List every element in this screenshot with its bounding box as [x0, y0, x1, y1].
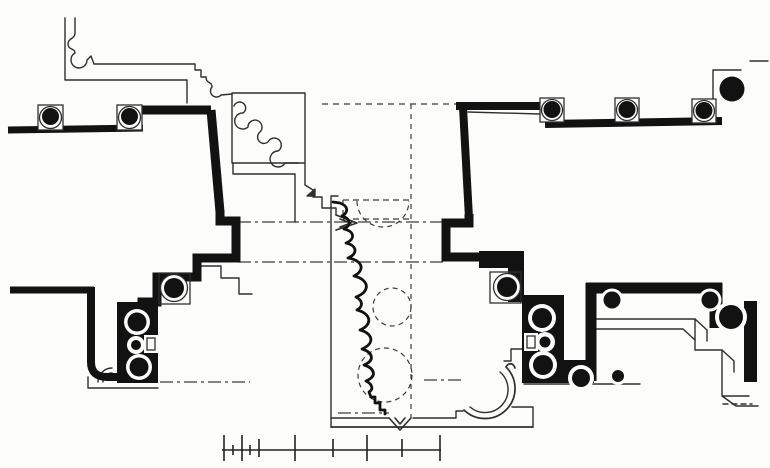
- step-outline-left-pier: [200, 266, 252, 294]
- ring-col-J-core: [572, 369, 590, 387]
- plan-figure: [0, 0, 770, 468]
- niche-arc-inner: [470, 372, 508, 413]
- triangle-hatch-mark: [307, 189, 315, 196]
- plinth-left-1-core: [42, 108, 59, 125]
- wall-right-diagonal: [463, 107, 469, 218]
- ring-col-A-core: [164, 278, 184, 298]
- dashed-pier-outline-box: [343, 200, 411, 219]
- ring-col-F-core: [497, 277, 517, 297]
- corner-column-big-core: [720, 77, 745, 102]
- pier-panel-molding-squiggle: [234, 102, 298, 167]
- wall-bottom-left-leg: [91, 287, 119, 377]
- chevron-notch: [389, 418, 411, 430]
- molding-inner-line: [65, 18, 187, 103]
- molding-outer-profile: [68, 18, 232, 97]
- plinth-columns: [38, 77, 745, 131]
- u-wall-inner-upper: [593, 319, 695, 340]
- ring-col-C-core: [131, 340, 141, 350]
- ring-col-leg-foot-core: [612, 370, 624, 382]
- plinth-left-2-core: [121, 108, 138, 125]
- ring-col-K-core: [719, 305, 743, 329]
- plinth-right-3-core: [696, 102, 713, 119]
- wavy-molding-profile: [333, 202, 385, 414]
- ring-col-B-core: [128, 313, 147, 332]
- plinth-right-1-core: [544, 101, 561, 118]
- colonnade-underline-right: [468, 112, 540, 114]
- bottom-band-upper: [331, 411, 463, 418]
- plinth-right-2-core: [619, 101, 636, 118]
- niche-link-steps: [504, 349, 525, 361]
- ring-col-G-core: [532, 308, 552, 328]
- section-profile: [333, 202, 385, 414]
- thin-outlines: [65, 18, 768, 430]
- wall-left-diagonal: [211, 110, 220, 212]
- ring-col-I-core: [533, 355, 553, 375]
- floor-plan-svg: [0, 0, 770, 468]
- dashed-semicircle-top: [357, 201, 409, 227]
- scale-bar: [222, 435, 441, 461]
- wall-right-steps: [446, 214, 492, 257]
- ring-col-D-core: [130, 358, 149, 377]
- dashed-circle-middle: [373, 288, 411, 326]
- central-bay-left-edge: [331, 196, 338, 427]
- bottom-band-right: [512, 407, 533, 427]
- wall-left-steps: [142, 210, 236, 307]
- black-masses: [117, 251, 757, 383]
- ring-col-L-core: [604, 292, 621, 309]
- project-outline-left: [233, 163, 295, 222]
- thick-walls: [8, 106, 722, 381]
- ring-col-M-core: [702, 292, 719, 309]
- dashed-circle-lower: [358, 348, 412, 402]
- ring-col-H-core: [540, 337, 551, 348]
